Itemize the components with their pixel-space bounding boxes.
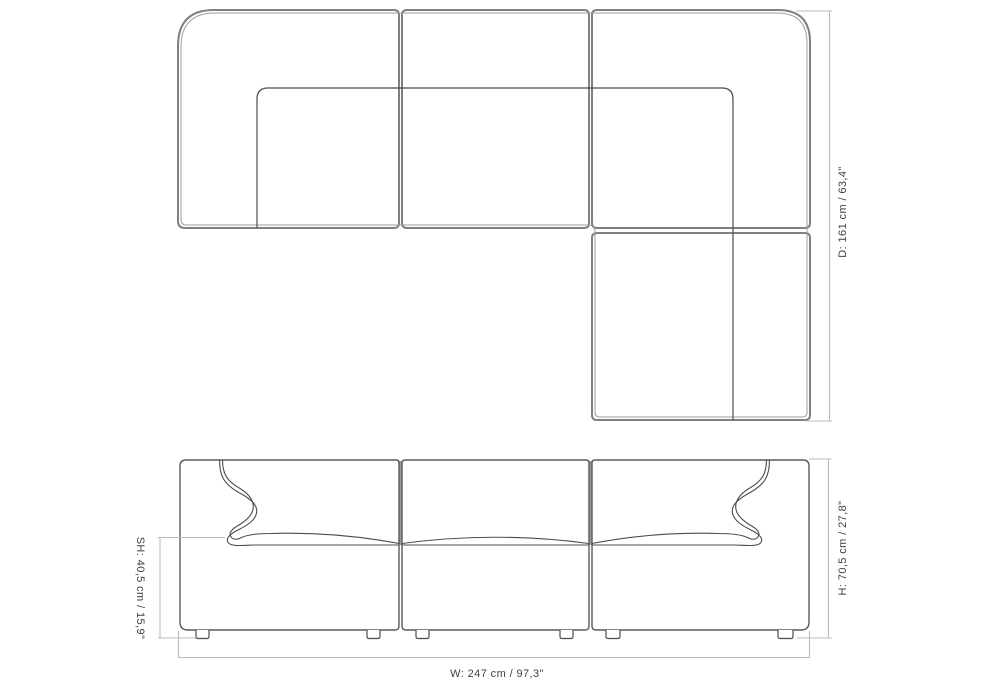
sofa-leg <box>196 630 209 639</box>
top-view-module-left <box>178 10 399 228</box>
front-view-legs <box>196 630 793 639</box>
top-view-module-middle <box>402 10 589 228</box>
top-view-module-chaise <box>592 233 810 420</box>
sofa-leg <box>367 630 380 639</box>
top-view <box>178 10 810 420</box>
sofa-leg <box>606 630 620 639</box>
sofa-leg <box>560 630 573 639</box>
sofa-leg <box>416 630 429 639</box>
width-dimension-line <box>179 631 810 658</box>
top-view-module-right <box>592 10 810 228</box>
width-dimension-label: W: 247 cm / 97,3" <box>434 668 560 680</box>
sofa-leg <box>778 630 793 639</box>
dimension-diagram: D: 161 cm / 63,4" H: 70,5 cm / 27,8" SH:… <box>0 0 1000 700</box>
sofa-line-drawing <box>0 0 1000 700</box>
seat-height-dimension-label: SH: 40,5 cm / 15,9" <box>134 536 146 640</box>
depth-dimension-label: D: 161 cm / 63,4" <box>837 164 849 260</box>
height-dimension-label: H: 70,5 cm / 27,8" <box>837 500 849 596</box>
